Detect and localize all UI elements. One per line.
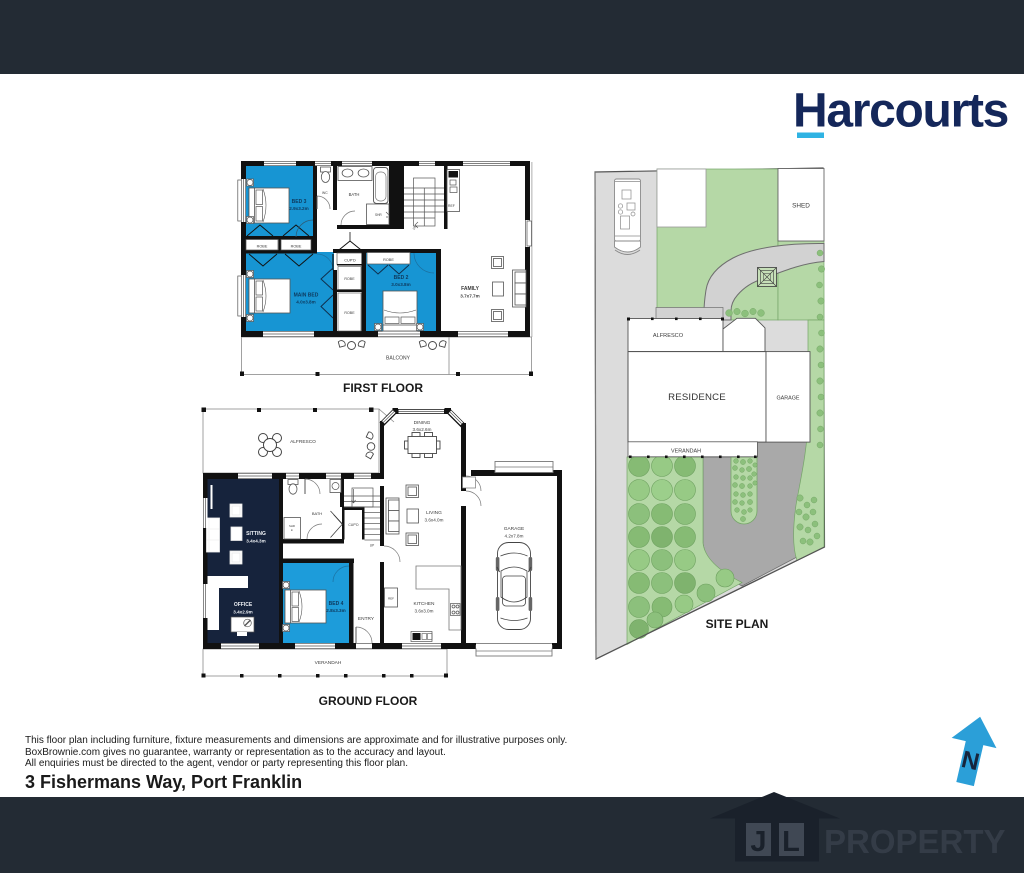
svg-text:CUP'D: CUP'D bbox=[344, 259, 356, 263]
svg-text:ROBE: ROBE bbox=[383, 258, 394, 262]
svg-text:VERANDAH: VERANDAH bbox=[315, 660, 342, 666]
svg-text:BED 2: BED 2 bbox=[394, 275, 409, 281]
svg-text:GARAGE: GARAGE bbox=[776, 396, 799, 402]
svg-text:3.7x7.7m: 3.7x7.7m bbox=[460, 294, 479, 299]
svg-text:N: N bbox=[959, 746, 982, 776]
svg-text:BALCONY: BALCONY bbox=[386, 356, 411, 362]
svg-text:DN: DN bbox=[412, 224, 419, 231]
svg-text:ENTRY: ENTRY bbox=[358, 616, 375, 622]
svg-text:ROBE: ROBE bbox=[344, 277, 355, 281]
svg-text:BATH: BATH bbox=[349, 192, 360, 197]
svg-text:BED 3: BED 3 bbox=[292, 199, 307, 205]
svg-text:4.2x7.8m: 4.2x7.8m bbox=[505, 534, 524, 539]
svg-text:SITTING: SITTING bbox=[246, 531, 266, 537]
svg-text:MAIN BED: MAIN BED bbox=[294, 293, 319, 299]
svg-text:OFFICE: OFFICE bbox=[234, 602, 253, 608]
svg-text:4.0x3.8m: 4.0x3.8m bbox=[296, 300, 315, 305]
svg-text:2.9x3.2m: 2.9x3.2m bbox=[289, 206, 308, 211]
svg-text:REF: REF bbox=[388, 597, 394, 601]
svg-text:3.0x3.8m: 3.0x3.8m bbox=[391, 282, 410, 287]
svg-text:FAMILY: FAMILY bbox=[461, 286, 480, 292]
svg-text:VERANDAH: VERANDAH bbox=[671, 449, 701, 455]
svg-text:REF: REF bbox=[448, 204, 455, 208]
svg-text:WC: WC bbox=[322, 191, 328, 195]
svg-text:ROBE: ROBE bbox=[291, 245, 302, 249]
svg-text:Harcourts: Harcourts bbox=[793, 85, 1008, 138]
svg-text:ROBE: ROBE bbox=[344, 311, 355, 315]
svg-text:3.6x2.6m: 3.6x2.6m bbox=[413, 427, 432, 432]
svg-text:ALFRESCO: ALFRESCO bbox=[653, 333, 684, 339]
svg-text:ALFRESCO: ALFRESCO bbox=[290, 439, 316, 445]
svg-text:RESIDENCE: RESIDENCE bbox=[668, 392, 726, 403]
svg-text:3.4x2.9m: 3.4x2.9m bbox=[233, 610, 252, 615]
svg-text:3.6x3.0m: 3.6x3.0m bbox=[415, 609, 434, 614]
svg-text:GARAGE: GARAGE bbox=[504, 526, 525, 532]
svg-text:UP: UP bbox=[370, 544, 374, 548]
svg-text:3.6x4.0m: 3.6x4.0m bbox=[425, 518, 444, 523]
svg-text:CUP'D: CUP'D bbox=[348, 523, 359, 527]
svg-text:3.4x4.3m: 3.4x4.3m bbox=[246, 539, 265, 544]
svg-text:2.8x3.3m: 2.8x3.3m bbox=[326, 608, 345, 613]
svg-text:KITCHEN: KITCHEN bbox=[413, 601, 435, 607]
svg-text:PROPERTY: PROPERTY bbox=[824, 823, 1006, 860]
svg-text:LIVING: LIVING bbox=[426, 510, 442, 516]
svg-text:ROBE: ROBE bbox=[257, 245, 268, 249]
svg-text:DINING: DINING bbox=[414, 420, 431, 426]
svg-text:BATH: BATH bbox=[312, 511, 322, 516]
svg-text:J: J bbox=[750, 826, 766, 858]
svg-text:BED 4: BED 4 bbox=[329, 601, 344, 607]
svg-text:SHR: SHR bbox=[375, 213, 382, 217]
svg-text:L: L bbox=[782, 826, 800, 858]
svg-text:SHED: SHED bbox=[792, 203, 810, 210]
